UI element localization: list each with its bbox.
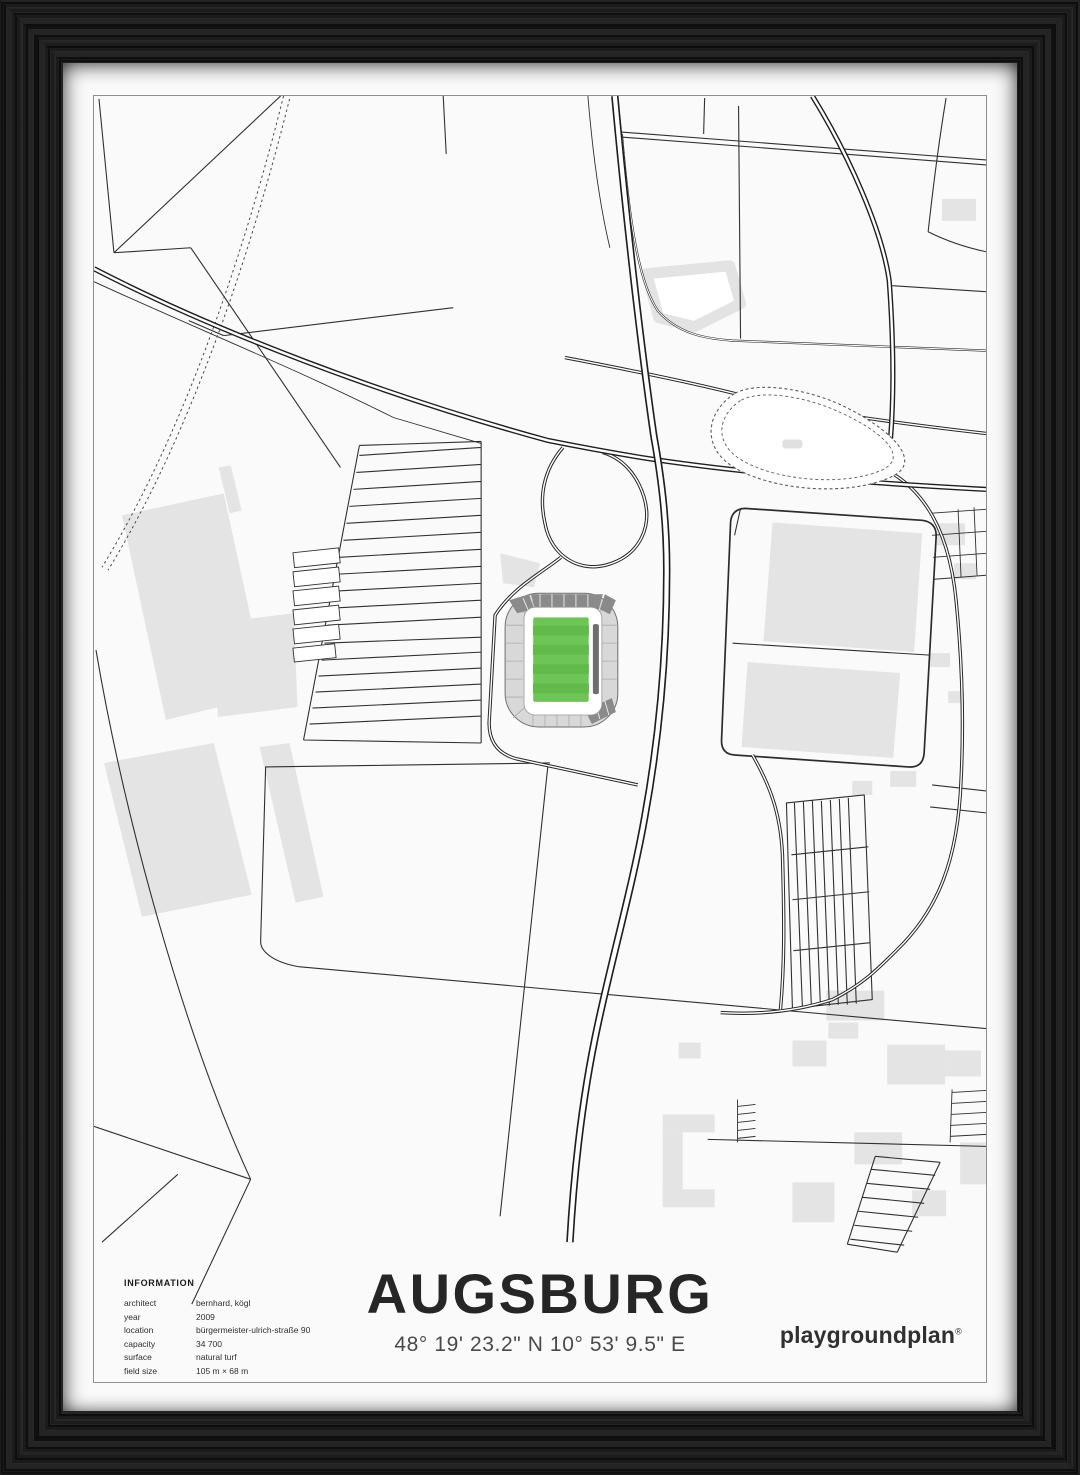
stadium-illustration (505, 593, 618, 727)
stadium-map (94, 96, 986, 1382)
pond-outline (711, 387, 905, 489)
info-row: field size 105 m × 68 m (124, 1365, 310, 1379)
info-value: 105 m × 68 m (196, 1365, 248, 1379)
frame-top-rail (0, 0, 1080, 63)
parking-grid (786, 795, 872, 1009)
registered-mark: ® (955, 1326, 962, 1336)
poster-title: AUGSBURG (94, 1264, 986, 1324)
frame-bottom-rail (0, 1411, 1080, 1475)
grid-west-road (753, 755, 784, 1010)
frame-left-rail (0, 0, 63, 1475)
info-label: field size (124, 1365, 196, 1379)
print-border: INFORMATION architect bernhard, kögl yea… (93, 95, 987, 1383)
poster: INFORMATION architect bernhard, kögl yea… (63, 63, 1017, 1411)
brand-logo: playgroundplan® (780, 1322, 962, 1349)
ring-building (647, 266, 741, 327)
interchange-loop (542, 447, 646, 566)
frame-right-rail (1017, 0, 1080, 1475)
stadium-roof-bar (593, 624, 599, 694)
brand-name: playgroundplan (780, 1322, 955, 1348)
railway-line (102, 96, 290, 570)
